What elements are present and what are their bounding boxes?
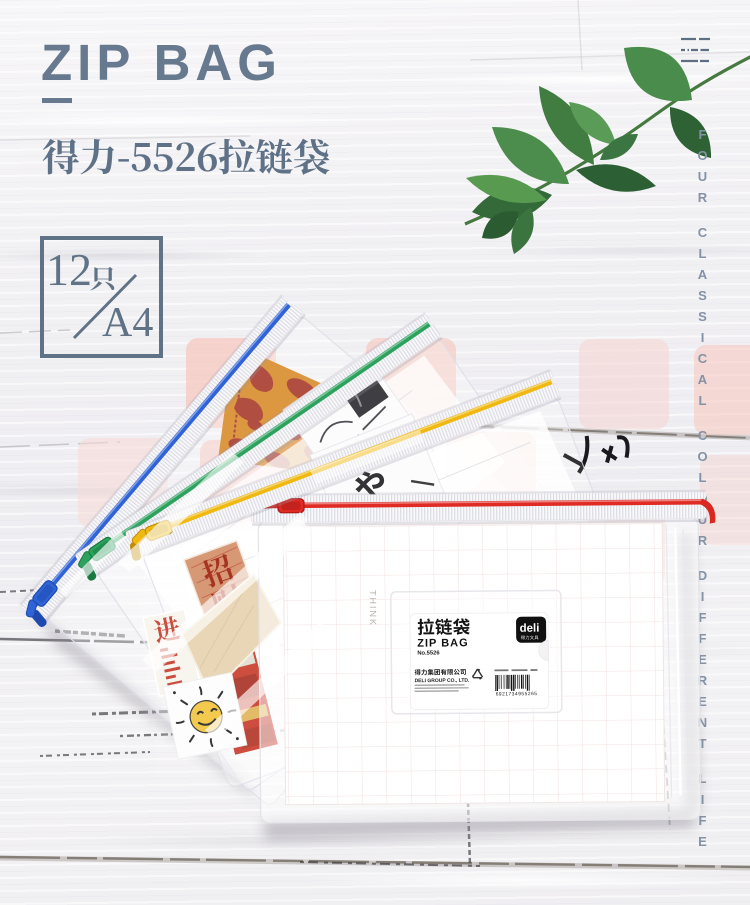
svg-text:No.5526: No.5526	[417, 650, 440, 656]
svg-text:deli: deli	[520, 623, 540, 635]
svg-text:THINK: THINK	[368, 590, 378, 627]
svg-text:6921734955265: 6921734955265	[496, 691, 538, 697]
svg-text:DELI GROUP CO., LTD.: DELI GROUP CO., LTD.	[415, 678, 470, 684]
svg-text:ZIP BAG: ZIP BAG	[417, 637, 469, 649]
